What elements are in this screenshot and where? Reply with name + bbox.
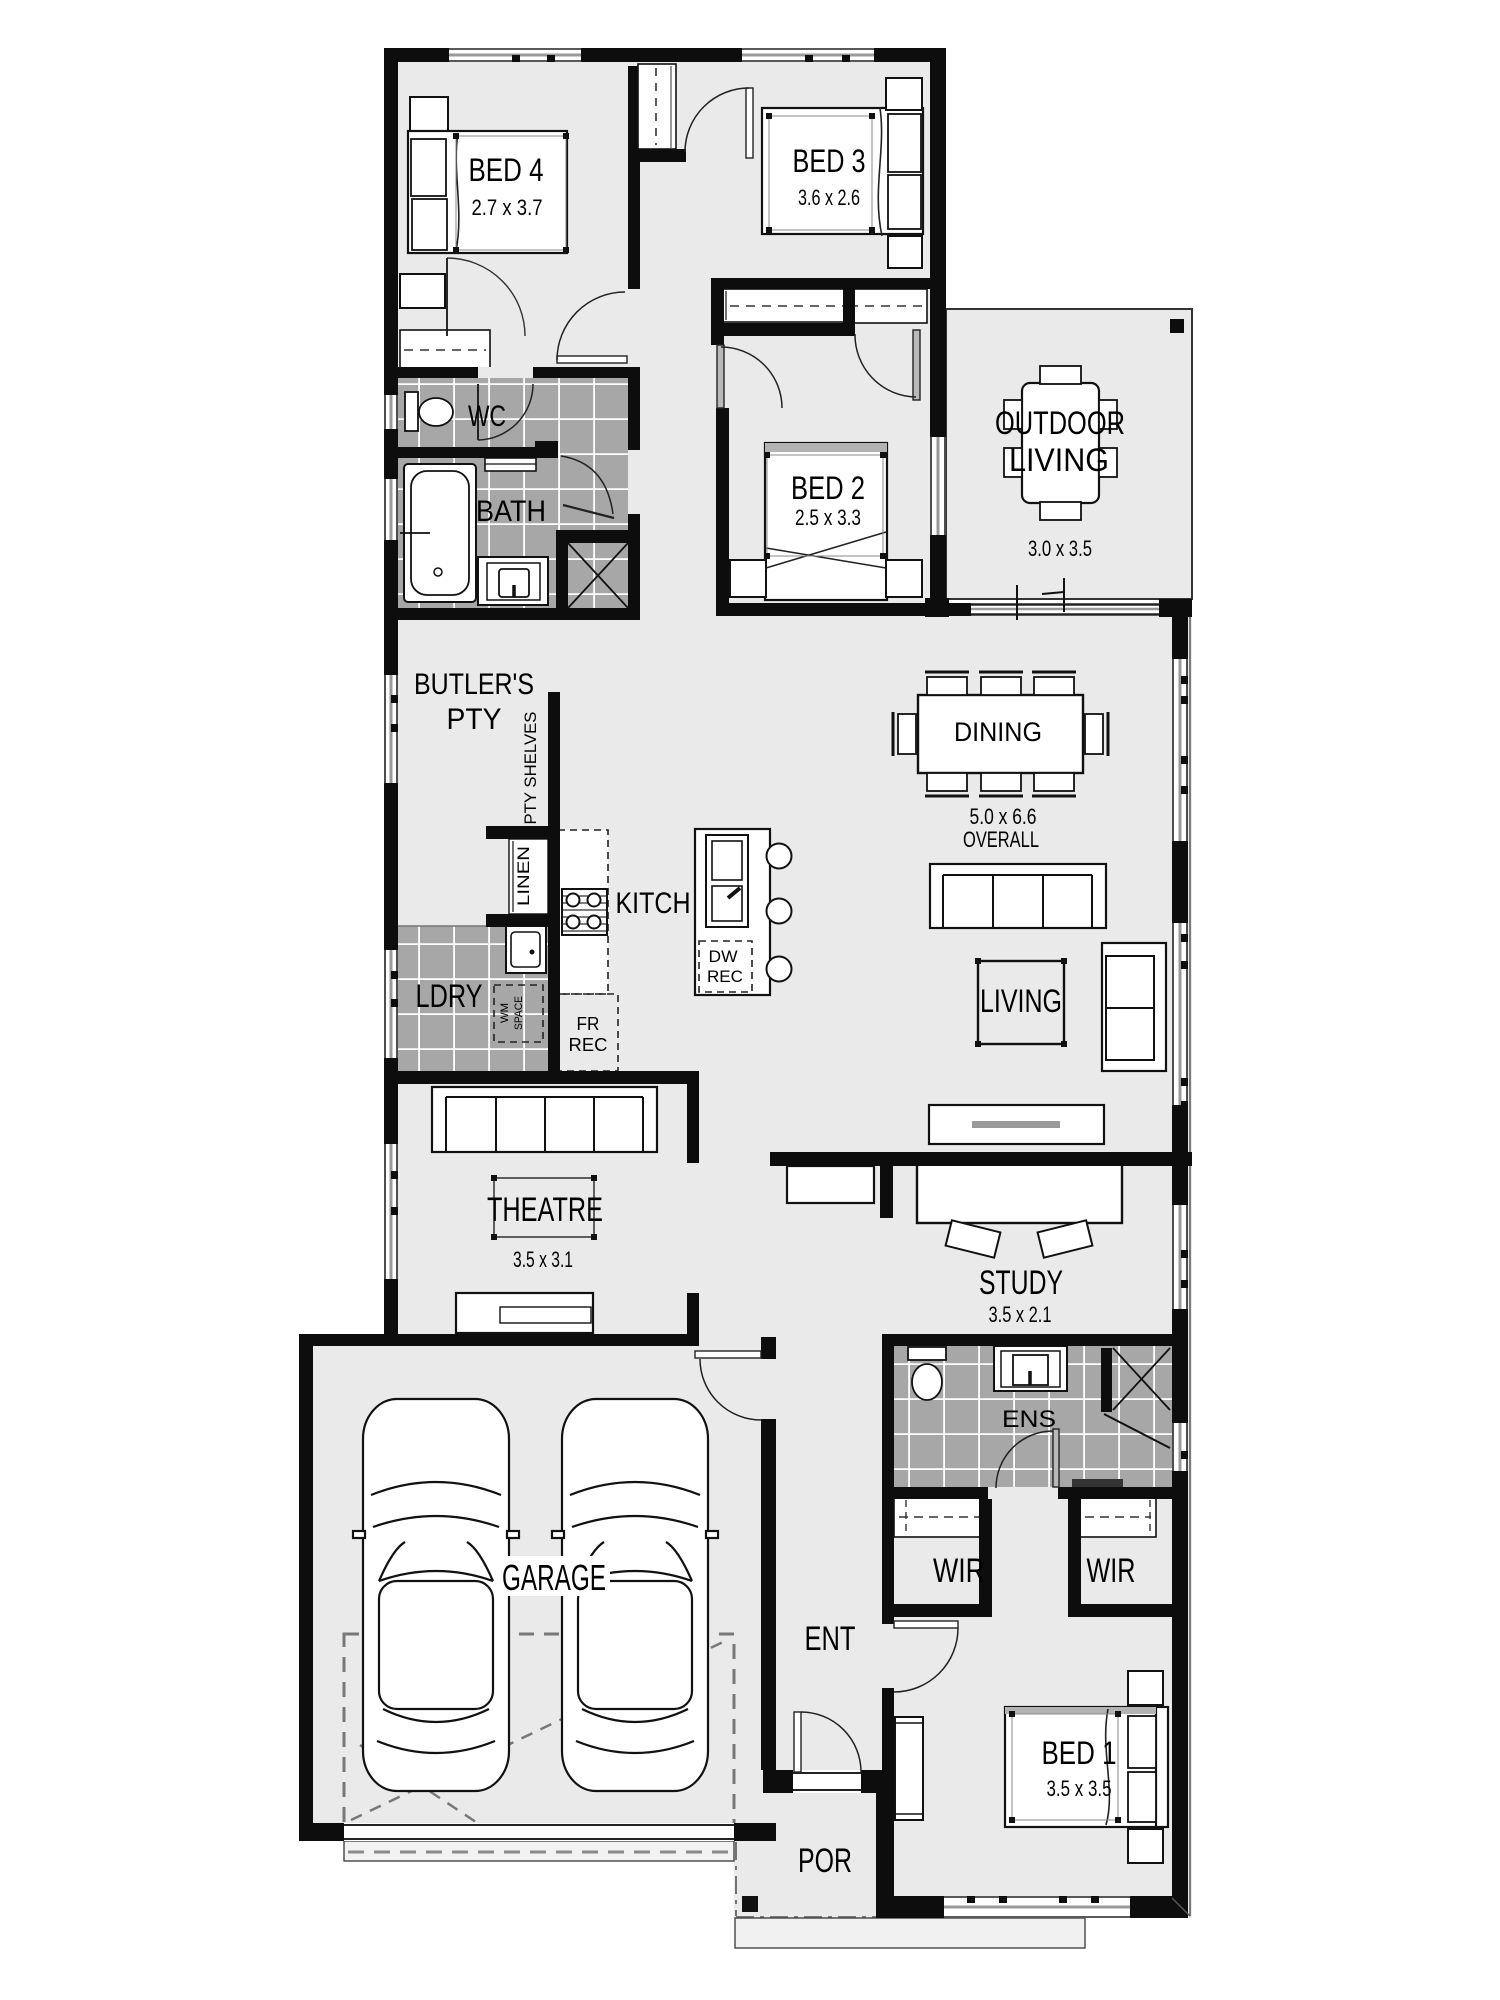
svg-text:SPACE: SPACE (513, 996, 525, 1030)
svg-text:3.5 x 2.1: 3.5 x 2.1 (989, 1302, 1052, 1327)
svg-text:DW: DW (709, 947, 738, 966)
svg-text:5.0 x 6.6: 5.0 x 6.6 (970, 804, 1037, 829)
svg-text:ENS: ENS (1002, 1406, 1056, 1433)
svg-text:POR: POR (798, 1842, 852, 1880)
svg-text:FR: FR (577, 1014, 600, 1034)
svg-text:BATH: BATH (476, 495, 546, 528)
svg-text:WM: WM (499, 1003, 511, 1023)
svg-text:WC: WC (468, 400, 506, 433)
svg-text:LIVING: LIVING (1009, 442, 1109, 478)
svg-text:3.0 x 3.5: 3.0 x 3.5 (1028, 536, 1092, 561)
svg-text:2.5 x 3.3: 2.5 x 3.3 (795, 505, 861, 530)
svg-text:BED 2: BED 2 (791, 470, 865, 506)
svg-text:REC: REC (569, 1035, 608, 1055)
svg-text:BUTLER'S: BUTLER'S (414, 668, 534, 701)
svg-text:BED 4: BED 4 (469, 152, 544, 188)
svg-text:BED 1: BED 1 (1042, 1735, 1117, 1771)
svg-text:PTY SHELVES: PTY SHELVES (521, 712, 540, 825)
svg-text:LIVING: LIVING (980, 983, 1062, 1019)
svg-text:ENT: ENT (805, 1620, 856, 1658)
svg-text:2.7 x 3.7: 2.7 x 3.7 (472, 195, 543, 220)
svg-text:3.5 x 3.1: 3.5 x 3.1 (513, 1247, 573, 1272)
svg-text:KITCH: KITCH (616, 887, 691, 920)
svg-text:BED 3: BED 3 (793, 143, 866, 179)
svg-text:LDRY: LDRY (416, 978, 483, 1014)
svg-text:GARAGE: GARAGE (502, 1557, 606, 1598)
svg-text:DINING: DINING (954, 717, 1042, 747)
svg-text:REC: REC (707, 967, 743, 986)
svg-text:PTY: PTY (447, 703, 502, 736)
svg-text:THEATRE: THEATRE (487, 1191, 603, 1229)
svg-text:WIR: WIR (1087, 1552, 1136, 1590)
svg-text:3.5 x 3.5: 3.5 x 3.5 (1047, 1776, 1112, 1801)
svg-text:WIR: WIR (933, 1552, 985, 1590)
svg-text:OVERALL: OVERALL (963, 827, 1039, 852)
svg-text:LINEN: LINEN (514, 846, 533, 906)
svg-text:OUTDOOR: OUTDOOR (995, 405, 1125, 441)
svg-text:STUDY: STUDY (979, 1264, 1063, 1302)
svg-text:3.6 x 2.6: 3.6 x 2.6 (798, 185, 860, 210)
